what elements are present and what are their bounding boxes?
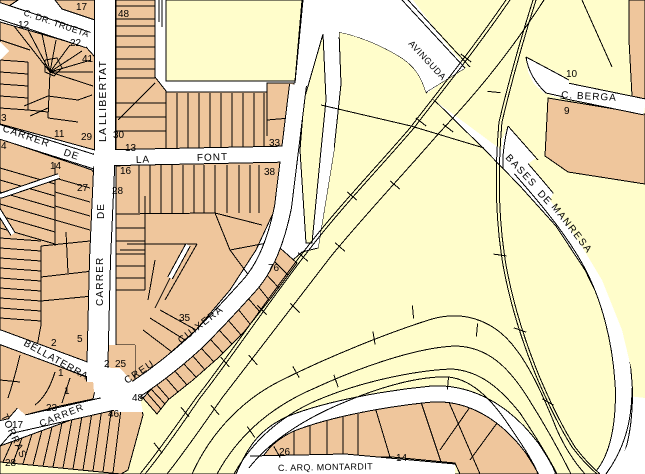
svg-text:1: 1 bbox=[64, 386, 70, 397]
svg-text:35: 35 bbox=[179, 313, 191, 324]
svg-text:17: 17 bbox=[76, 2, 88, 13]
svg-text:46: 46 bbox=[108, 409, 120, 420]
svg-text:2: 2 bbox=[104, 359, 110, 370]
svg-text:12: 12 bbox=[18, 20, 30, 31]
svg-text:16: 16 bbox=[120, 166, 132, 177]
svg-text:38: 38 bbox=[264, 167, 276, 178]
svg-text:48: 48 bbox=[132, 393, 144, 404]
svg-text:4: 4 bbox=[1, 141, 7, 152]
svg-text:48: 48 bbox=[118, 9, 130, 20]
svg-text:76: 76 bbox=[268, 263, 280, 274]
svg-text:LA: LA bbox=[136, 155, 151, 166]
svg-text:17: 17 bbox=[12, 420, 24, 431]
svg-text:29: 29 bbox=[81, 132, 93, 143]
svg-text:25: 25 bbox=[115, 359, 127, 370]
svg-text:13: 13 bbox=[125, 143, 137, 154]
svg-text:10: 10 bbox=[566, 69, 578, 80]
svg-text:23: 23 bbox=[46, 403, 58, 414]
svg-text:LA: LA bbox=[97, 127, 109, 142]
svg-text:2: 2 bbox=[51, 338, 57, 349]
svg-text:11: 11 bbox=[54, 129, 65, 140]
svg-text:FONT: FONT bbox=[197, 152, 229, 164]
svg-text:27: 27 bbox=[77, 183, 89, 194]
svg-text:30: 30 bbox=[113, 130, 125, 141]
svg-text:28: 28 bbox=[5, 458, 17, 469]
svg-text:33: 33 bbox=[269, 138, 281, 149]
svg-text:5: 5 bbox=[77, 334, 83, 345]
svg-text:C. ARQ. MONTARDIT: C. ARQ. MONTARDIT bbox=[278, 461, 373, 473]
svg-text:DE: DE bbox=[96, 203, 107, 219]
svg-text:14: 14 bbox=[50, 161, 62, 172]
svg-text:41: 41 bbox=[82, 54, 94, 65]
svg-text:CARRER: CARRER bbox=[95, 257, 106, 306]
svg-text:1: 1 bbox=[58, 368, 64, 379]
svg-text:9: 9 bbox=[564, 106, 570, 117]
svg-text:28: 28 bbox=[112, 186, 124, 197]
svg-text:22: 22 bbox=[70, 38, 82, 49]
svg-text:LLIBERTAT: LLIBERTAT bbox=[97, 60, 109, 125]
svg-text:14: 14 bbox=[396, 453, 408, 464]
svg-text:3: 3 bbox=[1, 113, 7, 124]
svg-text:26: 26 bbox=[279, 447, 291, 458]
